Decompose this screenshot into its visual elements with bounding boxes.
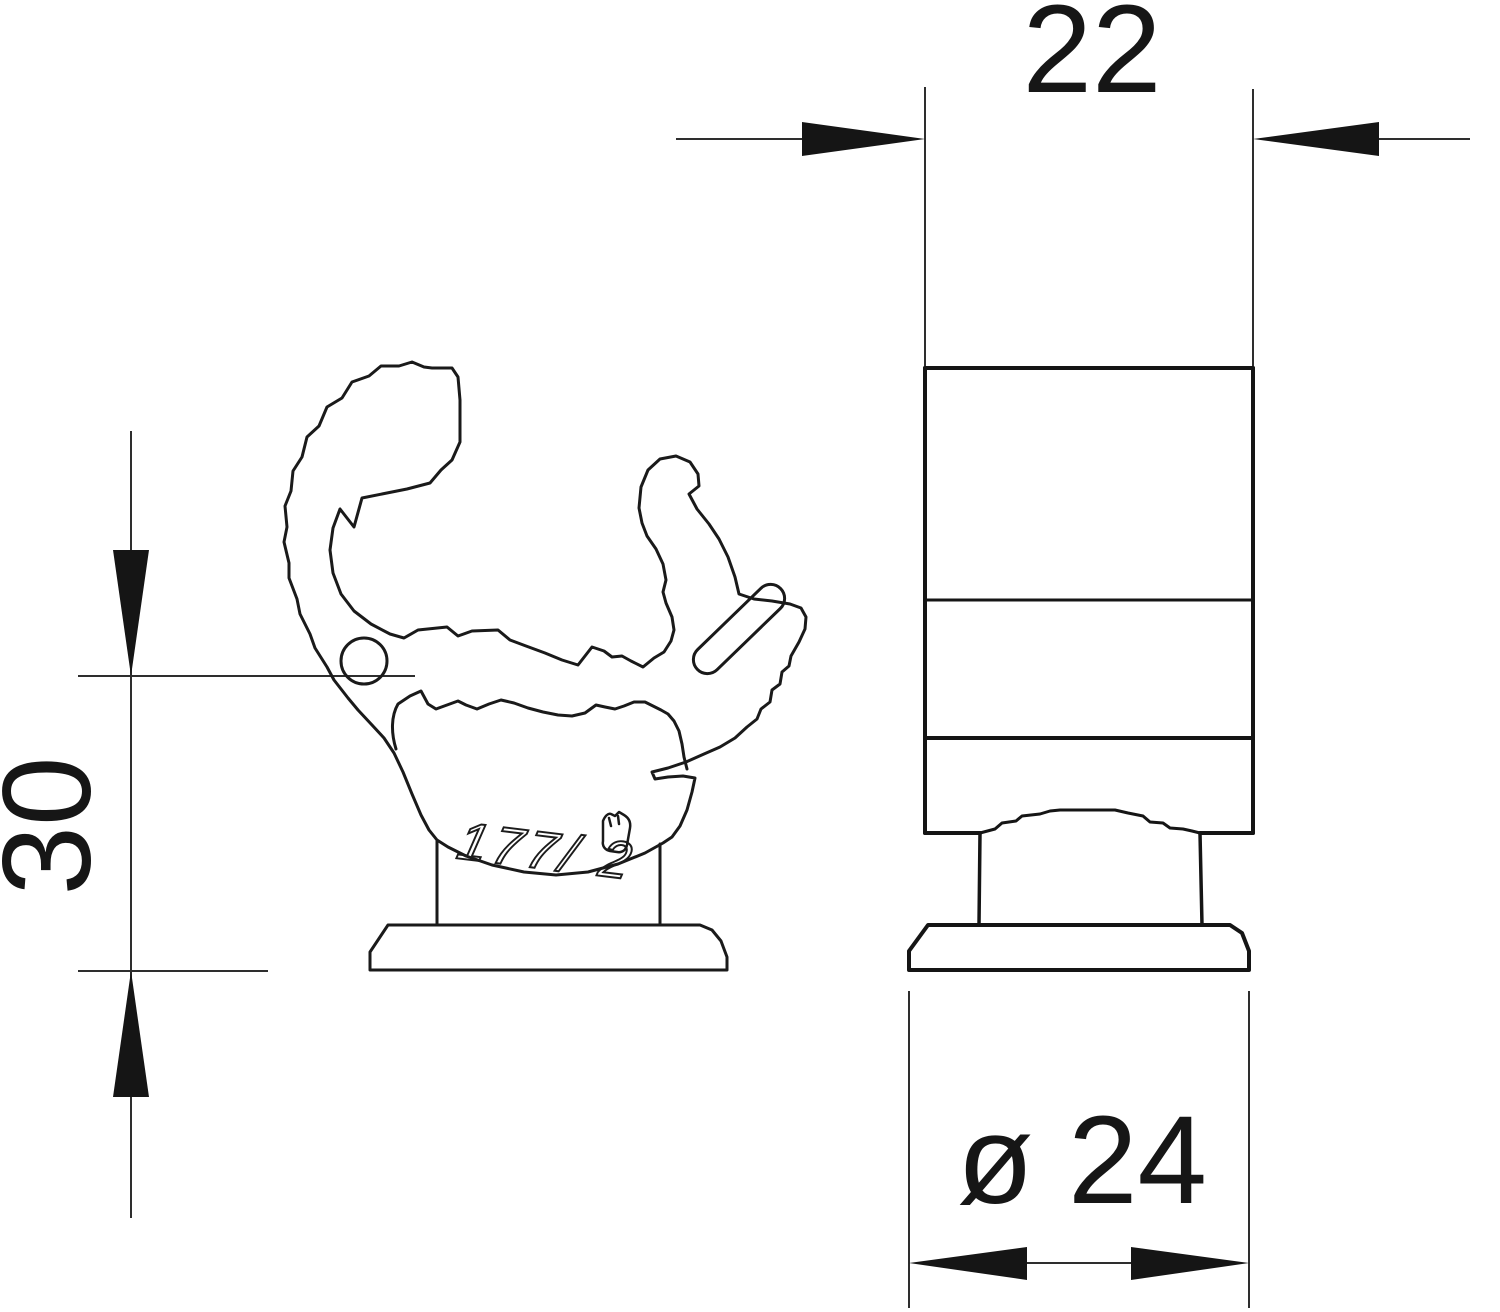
technical-drawing-page: 177/ 2 22 30 ø 24 bbox=[0, 0, 1500, 1312]
arrow-30-top-icon bbox=[113, 550, 149, 676]
arrow-d24-left-icon bbox=[909, 1247, 1027, 1280]
arrow-30-bottom-icon bbox=[113, 971, 149, 1097]
side-view bbox=[909, 368, 1253, 970]
technical-drawing-canvas: 177/ 2 22 30 ø 24 bbox=[0, 0, 1500, 1312]
clip-slit-line bbox=[392, 691, 687, 769]
dimension-line-group bbox=[78, 87, 1470, 1308]
dim-text-22: 22 bbox=[1022, 0, 1161, 119]
dim-text-30: 30 bbox=[0, 756, 117, 895]
front-base bbox=[370, 925, 727, 970]
clip-slot bbox=[693, 584, 784, 673]
arrow-22-left-icon bbox=[802, 122, 925, 156]
dim-text-d24: ø 24 bbox=[957, 1091, 1207, 1230]
side-base bbox=[909, 925, 1249, 970]
clip-hole bbox=[341, 638, 387, 684]
side-neck-right-line bbox=[1200, 833, 1202, 925]
arrow-22-right-icon bbox=[1253, 122, 1379, 156]
clip-marking-text: 177/ 2 bbox=[452, 812, 641, 891]
arrow-d24-right-icon bbox=[1131, 1247, 1249, 1280]
side-saddle-curve bbox=[980, 810, 1200, 833]
side-neck-left-line bbox=[979, 833, 980, 925]
